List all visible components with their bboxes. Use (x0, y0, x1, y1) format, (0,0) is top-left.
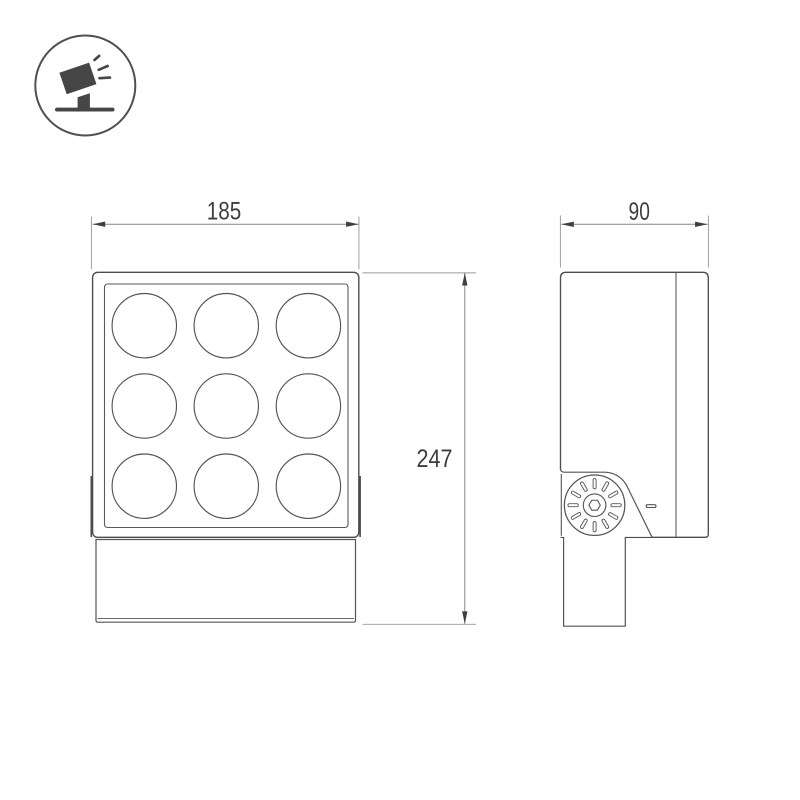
svg-text:185: 185 (207, 199, 242, 226)
svg-text:90: 90 (629, 199, 650, 226)
svg-text:247: 247 (417, 446, 453, 473)
